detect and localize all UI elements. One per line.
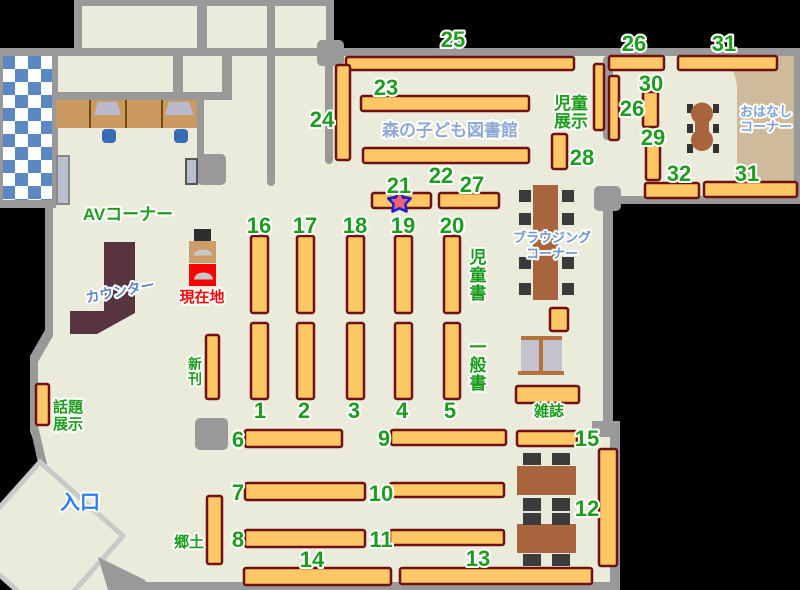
- svg-text:2: 2: [298, 398, 310, 423]
- svg-text:8: 8: [232, 527, 244, 552]
- svg-text:1: 1: [254, 398, 266, 423]
- svg-text:雑誌: 雑誌: [533, 402, 564, 420]
- svg-text:展示: 展示: [554, 112, 588, 131]
- svg-text:童: 童: [470, 265, 487, 285]
- svg-text:12: 12: [575, 496, 599, 521]
- svg-text:27: 27: [460, 172, 484, 197]
- svg-text:10: 10: [369, 481, 393, 506]
- svg-text:31: 31: [735, 161, 759, 186]
- svg-text:16: 16: [247, 213, 271, 238]
- svg-text:14: 14: [300, 547, 325, 572]
- svg-text:児: 児: [469, 248, 487, 267]
- svg-text:25: 25: [441, 27, 465, 52]
- svg-text:21: 21: [387, 173, 411, 198]
- svg-text:26: 26: [620, 96, 644, 121]
- svg-text:コーナー: コーナー: [740, 119, 792, 134]
- svg-text:26: 26: [622, 31, 646, 56]
- svg-text:15: 15: [575, 426, 599, 451]
- svg-text:森の子ども図書館: 森の子ども図書館: [382, 120, 518, 140]
- svg-text:4: 4: [396, 398, 409, 423]
- svg-text:入口: 入口: [60, 491, 100, 514]
- svg-text:29: 29: [641, 125, 665, 150]
- svg-text:5: 5: [444, 398, 456, 423]
- svg-text:郷土: 郷土: [174, 533, 204, 551]
- svg-text:コーナー: コーナー: [526, 246, 578, 261]
- svg-text:刊: 刊: [188, 371, 202, 387]
- svg-text:3: 3: [348, 398, 360, 423]
- svg-text:6: 6: [232, 427, 244, 452]
- svg-text:般: 般: [470, 355, 487, 375]
- svg-text:11: 11: [369, 527, 392, 552]
- svg-text:17: 17: [293, 213, 317, 238]
- svg-text:20: 20: [440, 213, 464, 238]
- svg-text:32: 32: [667, 161, 691, 186]
- svg-text:18: 18: [343, 213, 367, 238]
- svg-text:展示: 展示: [53, 416, 83, 433]
- svg-text:児童: 児童: [553, 93, 588, 113]
- svg-text:一: 一: [470, 338, 487, 357]
- svg-text:31: 31: [712, 31, 736, 56]
- svg-text:AVコーナー: AVコーナー: [83, 205, 173, 224]
- svg-text:22: 22: [429, 163, 453, 188]
- svg-text:28: 28: [570, 145, 594, 170]
- svg-text:30: 30: [639, 71, 663, 96]
- svg-text:書: 書: [470, 373, 487, 393]
- svg-text:19: 19: [391, 213, 415, 238]
- svg-text:23: 23: [374, 75, 398, 100]
- svg-text:9: 9: [378, 426, 390, 451]
- svg-text:24: 24: [310, 107, 335, 132]
- svg-text:新: 新: [188, 356, 202, 372]
- svg-text:7: 7: [232, 480, 244, 505]
- svg-text:ブラウジング: ブラウジング: [513, 230, 591, 245]
- svg-text:おはなし: おはなし: [740, 104, 792, 119]
- svg-text:書: 書: [470, 283, 487, 303]
- svg-text:13: 13: [466, 546, 490, 571]
- svg-text:話題: 話題: [53, 398, 84, 416]
- svg-text:現在地: 現在地: [179, 288, 224, 306]
